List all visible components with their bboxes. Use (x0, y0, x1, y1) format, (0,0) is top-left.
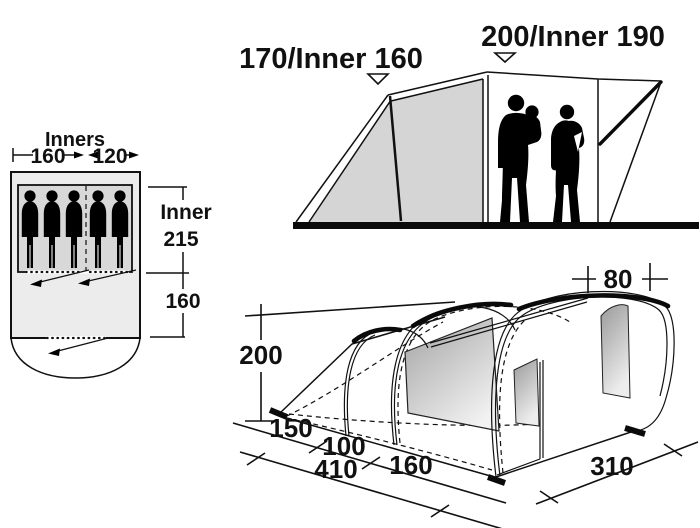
main-height-label: 200/Inner 190 (481, 21, 665, 53)
side-window (405, 318, 499, 431)
ground-line (293, 222, 699, 229)
inner-depth-value: 215 (163, 228, 198, 251)
main-pointer-icon (495, 53, 515, 62)
living-depth-value: 160 (165, 290, 200, 313)
total-length-dimension (240, 452, 513, 528)
inner-width-right-label: 120 (92, 145, 127, 168)
roof-overhang-value: 80 (604, 264, 633, 294)
tent-dimension-diagram: Inners 160 120 Inner 215 160 170/Inner 1… (0, 0, 700, 528)
elevation-view: 170/Inner 160 200/Inner 190 (239, 21, 699, 229)
diagram-canvas: Inners 160 120 Inner 215 160 170/Inner 1… (0, 0, 700, 528)
floorplan-view: Inners 160 120 Inner 215 160 (11, 129, 212, 378)
perspective-view: 200 80 150 100 160 410 310 (233, 263, 698, 528)
awning-pointer-icon (368, 74, 388, 84)
mid-front-window (514, 359, 539, 426)
woman-silhouette (551, 105, 584, 222)
door-window (601, 305, 630, 398)
total-length-value: 410 (314, 454, 357, 484)
inner-depth-word: Inner (160, 201, 211, 224)
floorplan-porch (11, 338, 140, 378)
adult-with-child-silhouette (498, 95, 541, 222)
inner-width-left-label: 160 (30, 145, 65, 168)
height-value: 200 (239, 340, 282, 370)
width-value: 310 (590, 451, 633, 481)
segment-front-value: 160 (389, 450, 432, 480)
awning-height-label: 170/Inner 160 (239, 43, 423, 75)
segment-porch-value: 150 (269, 413, 312, 443)
